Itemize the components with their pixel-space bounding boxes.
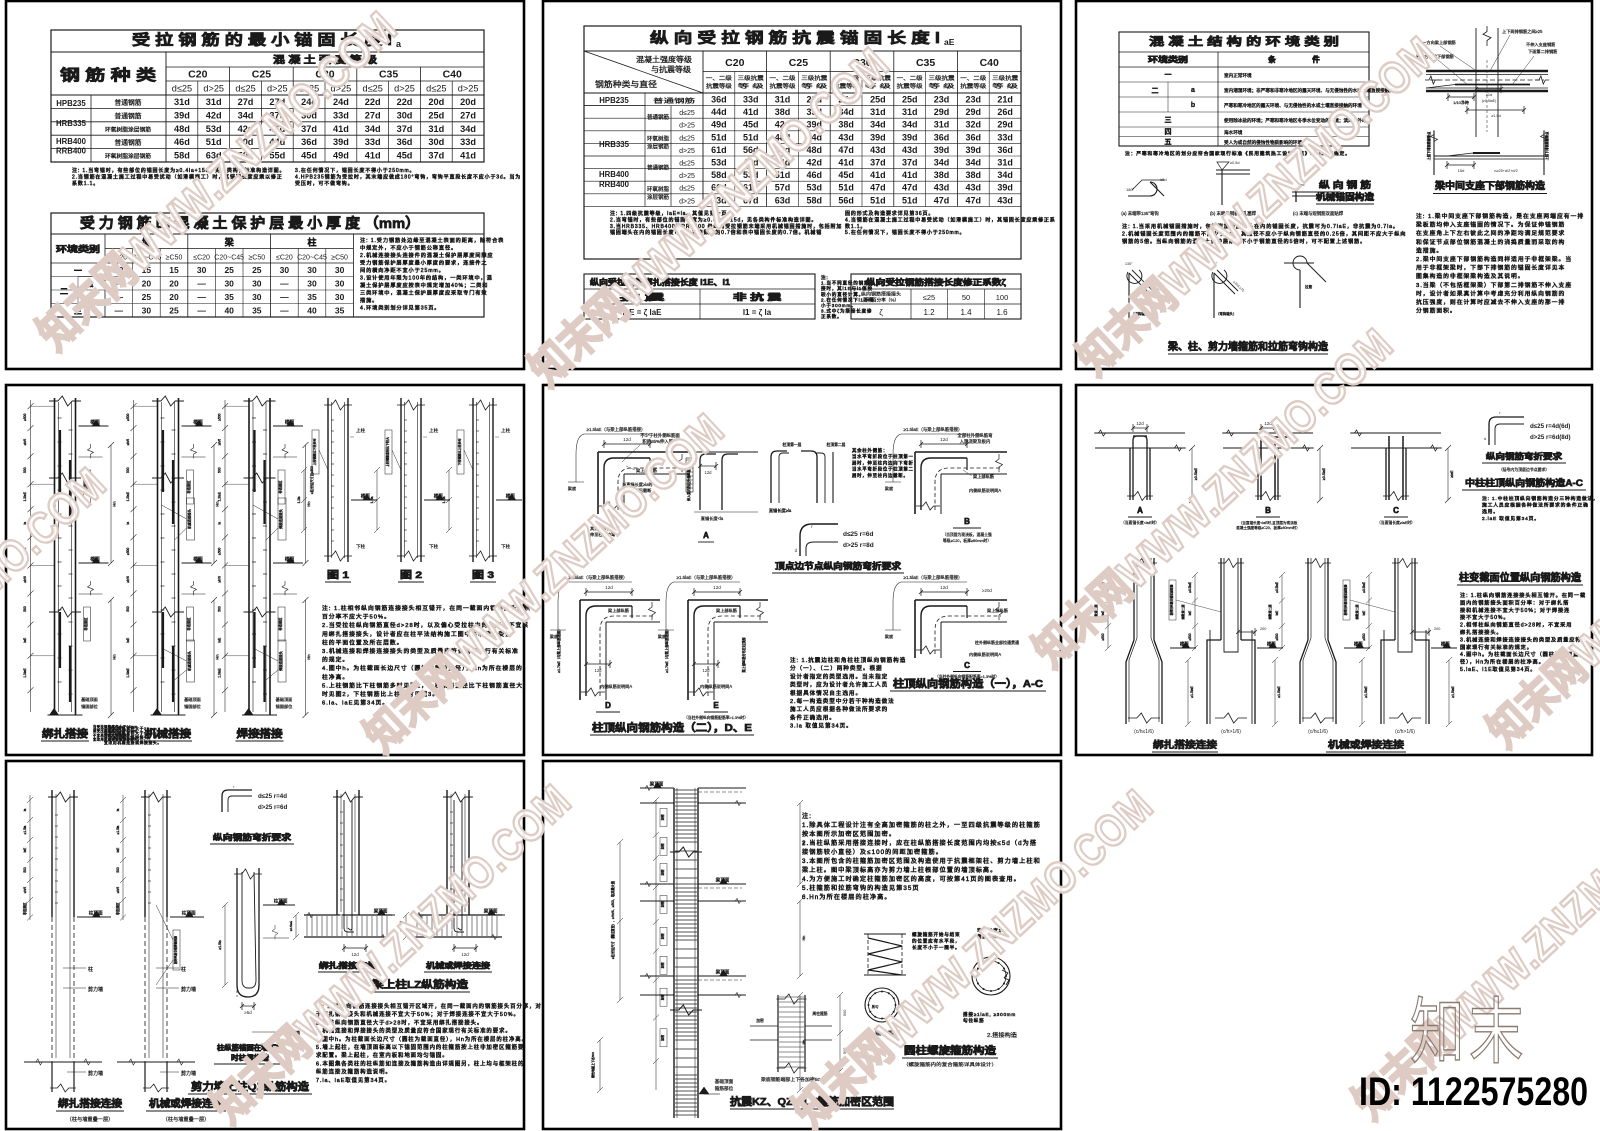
svg-text:类型时，应为设计者允许施工人员: 类型时，应为设计者允许施工人员 (790, 681, 888, 689)
svg-text:中柱柱顶纵向钢筋构造A-C: 中柱柱顶纵向钢筋构造A-C (1465, 477, 1584, 488)
svg-text:29d: 29d (966, 107, 982, 117)
svg-text:31d: 31d (206, 97, 222, 107)
svg-text:d>25: d>25 (679, 173, 695, 180)
svg-text:47d: 47d (966, 195, 982, 205)
svg-text:(c) 末端与短钢筋双面贴焊: (c) 末端与短钢筋双面贴焊 (1293, 210, 1344, 217)
svg-text:1.3laE: 1.3laE (23, 491, 27, 501)
svg-text:≥h/6: ≥h/6 (116, 887, 120, 893)
svg-text:(c/h≤1/6): (c/h≤1/6) (1308, 729, 1328, 735)
svg-text:15d: 15d (1458, 168, 1465, 173)
svg-text:22d: 22d (397, 97, 413, 107)
svg-text:图 2: 图 2 (400, 570, 422, 581)
svg-text:当水平弯折段位于柱顶第二: 当水平弯折段位于柱顶第二 (852, 466, 914, 473)
svg-text:4.图中h。为柱截面长边尺寸（圆柱为截面直径），Hn为所在楼: 4.图中h。为柱截面长边尺寸（圆柱为截面直径），Hn为所在楼层的柱净高。 (316, 1035, 528, 1043)
svg-text:（柱与墙重叠一层）: （柱与墙重叠一层） (67, 1115, 114, 1123)
svg-text:梁上柱。图中梁顶标高亦为剪力墙上柱根部位置的墙顶标高。: 梁上柱。图中梁顶标高亦为剪力墙上柱根部位置的墙顶标高。 (802, 866, 997, 874)
svg-text:下柱: 下柱 (429, 543, 439, 550)
svg-text:36d: 36d (966, 132, 982, 142)
svg-text:普通钢筋: 普通钢筋 (647, 164, 669, 172)
svg-text:≥500: ≥500 (126, 413, 130, 420)
svg-text:53d: 53d (807, 183, 823, 193)
svg-text:d: d (1484, 436, 1486, 441)
svg-text:37d: 37d (397, 124, 413, 134)
svg-text:20: 20 (169, 279, 179, 289)
svg-text:≥1.5laE（与梁上部纵筋搭接）: ≥1.5laE（与梁上部纵筋搭接） (677, 574, 736, 581)
svg-text:laE: laE (23, 848, 27, 853)
svg-text:基础顶面: 基础顶面 (184, 696, 201, 703)
svg-text:≥500: ≥500 (218, 413, 222, 420)
svg-text:23d: 23d (966, 95, 982, 105)
svg-text:上下两排钢筋之间≥25: 上下两排钢筋之间≥25 (1502, 28, 1543, 35)
svg-text:100: 100 (996, 293, 1009, 302)
svg-text:≥0.5laE: ≥0.5laE (1362, 582, 1366, 593)
svg-text:C: C (964, 661, 970, 670)
svg-text:1.2: 1.2 (923, 308, 935, 317)
svg-text:30: 30 (252, 279, 262, 289)
svg-text:加密: 加密 (660, 869, 665, 875)
svg-text:≥1.5laE（与梁上部纵筋搭接）: ≥1.5laE（与梁上部纵筋搭接） (904, 426, 963, 433)
svg-text:面积百分率（%）: 面积百分率（%） (863, 297, 899, 304)
svg-text:5.laE、l1E取值见第34页。: 5.laE、l1E取值见第34页。 (1460, 665, 1536, 673)
svg-text:机械或焊接连接: 机械或焊接连接 (1328, 739, 1405, 751)
svg-text:≥1.5la: ≥1.5la (218, 940, 222, 949)
svg-text:1.3laE: 1.3laE (218, 491, 222, 501)
svg-text:普通钢筋: 普通钢筋 (647, 113, 669, 121)
svg-text:34d: 34d (902, 120, 918, 130)
svg-text:柱顶第二层: 柱顶第二层 (827, 442, 846, 447)
svg-text:1.2la: 1.2la (442, 496, 446, 503)
svg-text:C35: C35 (379, 69, 398, 81)
svg-text:抗震等级: 抗震等级 (706, 82, 733, 90)
svg-text:30d: 30d (397, 110, 413, 120)
svg-text:剪力墙: 剪力墙 (88, 1070, 103, 1077)
svg-text:当水平弯折段位于柱顶第一: 当水平弯折段位于柱顶第一 (852, 453, 914, 460)
svg-text:47d: 47d (902, 183, 918, 193)
svg-text:≥1.5laE: ≥1.5laE (1277, 686, 1281, 698)
svg-text:500: 500 (126, 606, 130, 612)
svg-text:≥柱长边尺寸（圆柱直径）、≥Hn/6、≥500、取其最大值: ≥柱长边尺寸（圆柱直径）、≥Hn/6、≥500、取其最大值 (610, 880, 615, 959)
svg-text:HRB335: HRB335 (599, 140, 630, 149)
svg-text:C20~C45: C20~C45 (297, 255, 327, 262)
svg-text:加密: 加密 (660, 1035, 665, 1041)
svg-text:时，设计者如果真计算中考虑充分利用纵向钢筋的: 时，设计者如果真计算中考虑充分利用纵向钢筋的 (1416, 289, 1565, 297)
svg-text:≥h/6: ≥h/6 (218, 576, 222, 583)
svg-text:50: 50 (962, 293, 970, 302)
svg-text:求配置。梁上起柱，在室内板和地面均匀锚固。: 求配置。梁上起柱，在室内板和地面均匀锚固。 (316, 1051, 449, 1059)
svg-text:laE: laE (218, 637, 222, 643)
svg-text:用于非框架梁时，下部下排钢筋的锚固长度详见本: 用于非框架梁时，下部下排钢筋的锚固长度详见本 (1416, 264, 1565, 272)
svg-text:A: A (1137, 506, 1143, 515)
svg-text:la: la (126, 522, 130, 525)
svg-text:加密: 加密 (660, 933, 665, 939)
svg-text:非连接区: 非连接区 (278, 480, 283, 494)
svg-text:41d: 41d (870, 170, 886, 180)
svg-text:剪力墙: 剪力墙 (181, 986, 196, 993)
svg-text:31d: 31d (174, 97, 190, 107)
svg-text:HRB335: HRB335 (56, 119, 87, 128)
svg-text:3.在任何情况下，锚固长度不得小于250mm。: 3.在任何情况下，锚固长度不得小于250mm。 (295, 167, 415, 174)
svg-text:刚性地面上下各500: 刚性地面上下各500 (590, 1052, 595, 1078)
svg-text:31d: 31d (428, 124, 444, 134)
svg-text:31d: 31d (902, 107, 918, 117)
svg-text:一、二级: 一、二级 (706, 74, 733, 82)
svg-text:非连接区: 非连接区 (22, 902, 27, 916)
svg-text:38d: 38d (966, 170, 982, 180)
svg-text:加密: 加密 (660, 843, 665, 849)
svg-text:内侧纵筋说明同A: 内侧纵筋说明同A (600, 683, 632, 690)
svg-text:入现浇梁及板内: 入现浇梁及板内 (960, 438, 991, 445)
svg-text:500: 500 (23, 867, 27, 873)
svg-text:当受拉钢筋直径大于28mm: 当受拉钢筋直径大于28mm (104, 726, 157, 731)
svg-text:d>25: d>25 (679, 123, 695, 130)
svg-text:楼面: 楼面 (193, 419, 203, 426)
svg-text:39d: 39d (966, 145, 982, 155)
svg-text:基础顶面: 基础顶面 (715, 1078, 734, 1085)
svg-text:C: C (1393, 506, 1399, 515)
svg-text:la: la (23, 809, 27, 812)
svg-text:箍筋部位: 箍筋部位 (715, 1085, 734, 1092)
svg-text:非连接区: 非连接区 (115, 902, 120, 916)
svg-text:环氧树脂涂层钢筋: 环氧树脂涂层钢筋 (105, 125, 151, 133)
svg-text:图 3: 图 3 (472, 570, 494, 581)
svg-text:涂层钢筋: 涂层钢筋 (647, 193, 669, 201)
svg-text:环境类别: 环境类别 (56, 244, 100, 254)
svg-text:Hn: Hn (306, 501, 311, 506)
svg-text:30: 30 (142, 306, 152, 316)
svg-text:500: 500 (116, 867, 120, 873)
svg-text:Hn: Hn (112, 654, 117, 659)
svg-text:d≤25: d≤25 (679, 110, 695, 117)
svg-text:12d: 12d (605, 585, 613, 590)
svg-text:接钢筋较小直径）及≤100的间距加密箍筋。: 接钢筋较小直径）及≤100的间距加密箍筋。 (802, 848, 943, 856)
svg-text:25d: 25d (428, 110, 444, 120)
svg-text:d>25: d>25 (458, 84, 479, 94)
svg-text:HRB400: HRB400 (599, 170, 630, 179)
svg-text:39d: 39d (997, 183, 1013, 193)
svg-text:下柱: 下柱 (501, 543, 511, 550)
svg-text:29d: 29d (997, 120, 1013, 130)
svg-text:46d: 46d (174, 137, 190, 147)
svg-text:绑扎搭接: 绑扎搭接 (42, 727, 89, 740)
svg-text:39d: 39d (934, 145, 950, 155)
svg-text:加密: 加密 (756, 1018, 764, 1023)
svg-text:注: 1.柱纵向钢筋连接接头相互错开。在同一截: 注: 1.柱纵向钢筋连接接头相互错开。在同一截 (1460, 591, 1586, 599)
svg-text:≥0.5d: ≥0.5d (1230, 161, 1239, 165)
svg-text:上柱: 上柱 (429, 427, 439, 434)
svg-text:30: 30 (252, 292, 262, 302)
svg-text:（括号内为顶层边节点要求）: （括号内为顶层边节点要求） (1499, 467, 1550, 472)
svg-text:Hn: Hn (215, 654, 220, 659)
svg-text:7.la、laE取值见第34页。: 7.la、laE取值见第34页。 (316, 1076, 391, 1084)
svg-text:≥1.5laE（与梁上部纵筋搭接）: ≥1.5laE（与梁上部纵筋搭接） (904, 574, 963, 581)
svg-text:—: — (280, 292, 289, 302)
svg-text:30: 30 (335, 265, 345, 275)
svg-text:58d: 58d (807, 195, 823, 205)
svg-text:≥h/6: ≥h/6 (218, 439, 222, 446)
svg-text:≥5d: ≥5d (244, 1010, 252, 1015)
svg-text:4.HPB235钢筋为受拉时，其末端应做成180°弯钩，弯钩: 4.HPB235钢筋为受拉时，其末端应做成180°弯钩，弯钩平直段长度不应小于3… (295, 174, 521, 181)
svg-text:41d: 41d (460, 151, 476, 161)
svg-text:33d: 33d (743, 95, 759, 105)
svg-text:25: 25 (252, 265, 262, 275)
svg-text:机械连接接头: 机械连接接头 (187, 650, 192, 670)
svg-text:laE: laE (23, 637, 27, 643)
svg-text:纵向钢筋弯折要求: 纵向钢筋弯折要求 (1486, 451, 1563, 461)
svg-text:固的形式及构造要求详见第36页。: 固的形式及构造要求详见第36页。 (845, 210, 934, 217)
svg-text:53d: 53d (206, 124, 222, 134)
svg-text:45d: 45d (838, 170, 854, 180)
svg-text:根据具体情况自主选用。: 根据具体情况自主选用。 (790, 689, 862, 697)
svg-text:≥0.5laE: ≥0.5laE (1188, 582, 1192, 593)
svg-text:1.6: 1.6 (996, 308, 1008, 317)
svg-text:环氧树脂涂层钢筋: 环氧树脂涂层钢筋 (105, 152, 151, 160)
svg-text:43d: 43d (997, 195, 1013, 205)
svg-text:≤C20: ≤C20 (193, 255, 210, 262)
svg-text:全部柱外侧纵筋弯: 全部柱外侧纵筋弯 (957, 432, 993, 439)
svg-text:钢 筋 种 类: 钢 筋 种 类 (60, 66, 157, 84)
svg-text:34d: 34d (460, 124, 476, 134)
svg-text:27d: 27d (365, 110, 381, 120)
svg-text:37d: 37d (870, 158, 886, 168)
svg-text:设计者指定的类型选用。当未指定: 设计者指定的类型选用。当未指定 (790, 672, 888, 680)
svg-text:下柱钢筋比上柱多时: 下柱钢筋比上柱多时 (457, 438, 462, 465)
svg-text:（柱与墙重叠一层）: （柱与墙重叠一层） (163, 1115, 210, 1123)
svg-text:（螺旋箍筋内的复合箍筋详具体设计）: （螺旋箍筋内的复合箍筋详具体设计） (903, 1061, 997, 1068)
svg-text:国家现行有关标准的规定。: 国家现行有关标准的规定。 (1460, 643, 1533, 651)
svg-text:(a) 末端带135°弯钩: (a) 末端带135°弯钩 (1121, 210, 1159, 217)
svg-text:34d: 34d (870, 120, 886, 130)
svg-text:涂层钢筋: 涂层钢筋 (647, 142, 669, 150)
svg-text:混凝土强度等级≥C20、板厚≥80mm时）: 混凝土强度等级≥C20、板厚≥80mm时） (1236, 525, 1300, 530)
svg-text:柱顶纵向钢筋构造（二），D、E: 柱顶纵向钢筋构造（二），D、E (592, 721, 752, 734)
svg-text:按本图所示加密区范围加密。: 按本图所示加密区范围加密。 (802, 830, 896, 838)
svg-text:注: 1.梁中间支座下部钢筋构造，是在支座两端应有一排: 注: 1.梁中间支座下部钢筋构造，是在支座两端应有一排 (1416, 212, 1584, 220)
svg-text:C40: C40 (980, 57, 999, 69)
svg-text:混凝土强度等级: 混凝土强度等级 (636, 55, 692, 64)
svg-text:三级抗震: 三级抗震 (929, 74, 956, 82)
svg-text:≥500: ≥500 (1362, 633, 1366, 640)
svg-text:4.当钢筋在混凝土施工过程中易受扰动（如滑模施工）时，其锚固: 4.当钢筋在混凝土施工过程中易受扰动（如滑模施工）时，其锚固长度应乘修正系 (845, 216, 1056, 223)
svg-text:5.墙上起柱，在墙顶面标高以下锚固范围内的柱箍筋按上柱非加密: 5.墙上起柱，在墙顶面标高以下锚固范围内的柱箍筋按上柱非加密区箍筋要 (316, 1043, 524, 1051)
svg-text:l1 = ζ la: l1 = ζ la (743, 308, 772, 317)
svg-text:纵向受拉钢筋搭接长度修正系数ζ: 纵向受拉钢筋搭接长度修正系数ζ (866, 277, 1006, 287)
svg-text:a: a (1191, 87, 1195, 94)
svg-text:楼面: 楼面 (1354, 641, 1363, 648)
svg-text:室内正常环境: 室内正常环境 (1224, 72, 1252, 79)
svg-text:23d: 23d (934, 95, 950, 105)
svg-text:12d: 12d (940, 437, 948, 442)
svg-text:拉筋: 拉筋 (1305, 284, 1313, 289)
svg-text:倒数第二层: 倒数第二层 (1354, 604, 1359, 619)
svg-text:知末: 知末 (1410, 993, 1528, 1073)
svg-text:51d: 51d (870, 195, 886, 205)
svg-text:A: A (703, 531, 709, 540)
svg-text:(c/h>1/6): (c/h>1/6) (1395, 729, 1415, 735)
svg-text:1.2la: 1.2la (370, 496, 374, 503)
svg-text:30: 30 (335, 279, 345, 289)
svg-text:46d: 46d (807, 170, 823, 180)
svg-text:径），Hn为所在楼层的柱净高。: 径），Hn为所在楼层的柱净高。 (1460, 658, 1545, 666)
svg-text:25d: 25d (902, 95, 918, 105)
svg-text:22d: 22d (365, 97, 381, 107)
svg-text:上柱: 上柱 (356, 427, 366, 434)
svg-text:梁、柱、剪力墙箍筋和拉筋弯钩构造: 梁、柱、剪力墙箍筋和拉筋弯钩构造 (1167, 340, 1329, 353)
svg-text:内侧纵筋说明同A: 内侧纵筋说明同A (969, 487, 1001, 494)
svg-text:36d: 36d (934, 132, 950, 142)
svg-text:面内的钢筋接头面积百分率：对于绑扎搭: 面内的钢筋接头面积百分率：对于绑扎搭 (1460, 598, 1569, 606)
svg-text:45d: 45d (301, 151, 317, 161)
svg-text:47d: 47d (934, 195, 950, 205)
svg-text:基础顶面: 基础顶面 (81, 696, 98, 703)
svg-text:135°: 135° (1125, 262, 1133, 266)
svg-text:中规定外，不应小于钢筋公称直径。: 中规定外，不应小于钢筋公称直径。 (360, 244, 457, 252)
svg-text:抗震等级: 抗震等级 (770, 82, 797, 90)
svg-text:42d: 42d (206, 110, 222, 120)
svg-text:≥C50: ≥C50 (331, 255, 348, 262)
svg-text:1.2la: 1.2la (297, 496, 301, 503)
svg-text:47d: 47d (838, 145, 854, 155)
svg-text:(≥0.5laE): (≥0.5laE) (1482, 99, 1497, 103)
svg-text:混 凝 土 结 构 的 环 境 类 别: 混 凝 土 结 构 的 环 境 类 别 (1149, 34, 1339, 48)
svg-text:n≥25+d/2+d/2: n≥25+d/2+d/2 (1494, 169, 1517, 173)
svg-text:34d: 34d (365, 124, 381, 134)
svg-text:≥1.5la: ≥1.5la (23, 825, 27, 834)
svg-text:条: 条 (1267, 54, 1276, 64)
svg-text:数1.1。: 数1.1。 (845, 223, 866, 230)
svg-text:—: — (197, 279, 206, 289)
svg-text:分（一）、（二）两种类型。根据: 分（一）、（二）两种类型。根据 (790, 664, 883, 672)
svg-text:内侧纵筋说明同A: 内侧纵筋说明同A (969, 651, 1001, 658)
svg-text:38d: 38d (934, 170, 950, 180)
svg-text:一、二级: 一、二级 (770, 74, 797, 82)
svg-text:普通钢筋: 普通钢筋 (115, 138, 143, 147)
svg-text:焊接连接接头: 焊接连接接头 (278, 508, 283, 528)
svg-text:非连接区: 非连接区 (186, 617, 191, 631)
svg-text:500: 500 (218, 467, 222, 473)
svg-text:和保证节点部位钢筋混凝土的浇捣质量而采取的构: 和保证节点部位钢筋混凝土的浇捣质量而采取的构 (1416, 238, 1565, 246)
svg-text:楼面: 楼面 (285, 419, 295, 426)
svg-text:≥C50: ≥C50 (248, 255, 265, 262)
svg-text:51d: 51d (838, 183, 854, 193)
svg-text:≤25: ≤25 (923, 293, 935, 302)
svg-text:（当柱外侧纵向钢筋配筋率>1.3%时）: （当柱外侧纵向钢筋配筋率>1.3%时） (684, 715, 748, 720)
svg-text:2.laE 取值见第34页。: 2.laE 取值见第34页。 (1482, 515, 1540, 522)
svg-text:柱变截面位置纵向钢筋构造: 柱变截面位置纵向钢筋构造 (1459, 571, 1582, 584)
svg-text:(c/h>1/6): (c/h>1/6) (1221, 729, 1241, 735)
svg-text:楼面: 楼面 (90, 419, 100, 426)
svg-text:普通钢筋: 普通钢筋 (115, 111, 143, 120)
svg-text:d≤25 r=6d: d≤25 r=6d (843, 531, 874, 538)
svg-text:机械连接接头: 机械连接接头 (187, 508, 192, 528)
svg-text:43d: 43d (838, 132, 854, 142)
svg-text:钢筋种类与直径: 钢筋种类与直径 (595, 79, 657, 89)
svg-text:56d: 56d (838, 195, 854, 205)
svg-text:laE: laE (116, 848, 120, 853)
svg-text:12d: 12d (713, 585, 721, 590)
svg-text:4.为方便施工时确定柱箍筋加密区的高度，可按第41页的图表查: 4.为方便施工时确定柱箍筋加密区的高度，可按第41页的图表查用。 (802, 875, 1021, 883)
svg-text:27d: 27d (238, 97, 254, 107)
svg-text:注: 1.中柱柱顶纵向钢筋构造分三种构造做法，: 注: 1.中柱柱顶纵向钢筋构造分三种构造做法， (1482, 495, 1599, 502)
svg-text:造措施。: 造措施。 (1416, 246, 1443, 254)
svg-text:1.3laE: 1.3laE (126, 668, 130, 678)
svg-text:49d: 49d (333, 151, 349, 161)
svg-text:纵 向 受 拉 钢 筋 抗 震 锚 固 长 度 l: 纵 向 受 拉 钢 筋 抗 震 锚 固 长 度 l (650, 29, 940, 47)
svg-text:(c/h≤1/6): (c/h≤1/6) (1134, 729, 1154, 735)
svg-text:C35: C35 (916, 57, 935, 69)
svg-text:柱外侧纵筋全部拉通贯通: 柱外侧纵筋全部拉通贯通 (975, 639, 1019, 645)
svg-text:加密: 加密 (660, 814, 665, 820)
svg-text:柱顶第一层: 柱顶第一层 (783, 442, 802, 447)
svg-text:d>25 r=8d: d>25 r=8d (843, 542, 874, 549)
svg-text:500: 500 (23, 606, 27, 612)
svg-text:37d: 37d (902, 158, 918, 168)
svg-text:≥500: ≥500 (23, 413, 27, 420)
svg-text:四: 四 (1165, 128, 1172, 136)
svg-text:等 级: 等 级 (738, 82, 765, 90)
svg-text:33d: 33d (333, 110, 349, 120)
svg-text:梁顶面: 梁顶面 (650, 781, 664, 788)
svg-text:C40: C40 (443, 69, 462, 81)
svg-text:不伸入支座钢筋: 不伸入支座钢筋 (1526, 41, 1555, 48)
svg-text:绑扎搭接连接: 绑扎搭接连接 (58, 1097, 122, 1110)
svg-text:纵筋连接及箍筋构造说明。: 纵筋连接及箍筋构造说明。 (316, 1068, 392, 1076)
svg-text:12d: 12d (940, 585, 948, 590)
svg-text:5.柱箍筋和拉筋弯钩的构造见第35页: 5.柱箍筋和拉筋弯钩的构造见第35页 (802, 884, 920, 892)
svg-text:环氧树脂: 环氧树脂 (647, 185, 669, 193)
svg-text:≥h/6: ≥h/6 (126, 439, 130, 446)
svg-text:200: 200 (1434, 627, 1440, 631)
svg-text:下柱: 下柱 (356, 543, 366, 550)
svg-text:等 级: 等 级 (992, 82, 1019, 90)
svg-text:≥500: ≥500 (1275, 633, 1279, 640)
svg-text:三类环境中，混凝土保护层厚度应采取专门有效: 三类环境中，混凝土保护层厚度应采取专门有效 (360, 289, 487, 297)
svg-text:注:: 注: (802, 812, 812, 820)
svg-text:6.Hn为所在楼层的柱净高。: 6.Hn为所在楼层的柱净高。 (802, 893, 892, 901)
svg-text:500: 500 (843, 1010, 847, 1016)
svg-text:（弯钩端头）: （弯钩端头） (1216, 311, 1236, 316)
svg-text:≥h/6: ≥h/6 (23, 887, 27, 893)
svg-text:laE: laE (126, 637, 130, 643)
svg-text:上柱钢筋直径比下柱大: 上柱钢筋直径比下柱大 (385, 437, 390, 467)
svg-text:ID: 1122575280: ID: 1122575280 (1359, 1070, 1588, 1114)
svg-text:上层下排钢筋截断点: 上层下排钢筋截断点 (1426, 131, 1431, 160)
svg-text:绑扎搭接接头。: 绑扎搭接接头。 (1460, 628, 1502, 636)
svg-text:三级抗震: 三级抗震 (992, 74, 1019, 82)
svg-text:la: la (116, 809, 120, 812)
svg-text:楼面: 楼面 (193, 556, 203, 563)
svg-text:绑扎搭接连接: 绑扎搭接连接 (1153, 739, 1218, 751)
svg-text:58d: 58d (174, 151, 190, 161)
svg-text:ζ: ζ (879, 308, 883, 317)
svg-text:2.每一构造类型中分若干种构造做法: 2.每一构造类型中分若干种构造做法 (790, 697, 895, 705)
svg-text:1/10净跨: 1/10净跨 (1453, 99, 1469, 105)
svg-text:≥1.5d: ≥1.5d (1491, 114, 1500, 118)
svg-text:6.本图集各类柱的柱纵筋如连接及箍筋构造由详规图另，柱上均与: 6.本图集各类柱的柱纵筋如连接及箍筋构造由详规图另，柱上均与框架柱的 (316, 1059, 524, 1067)
svg-text:41d: 41d (365, 151, 381, 161)
svg-text:d≤25: d≤25 (679, 186, 695, 193)
svg-text:34d: 34d (966, 158, 982, 168)
svg-text:41d: 41d (743, 107, 759, 117)
svg-text:相邻纵筋交错焊接连接: 相邻纵筋交错焊接连接 (174, 936, 178, 964)
svg-text:30: 30 (335, 292, 345, 302)
svg-text:（当顶层为现浇板，混凝土强: （当顶层为现浇板，混凝土强 (942, 532, 992, 537)
svg-text:1.3laE: 1.3laE (126, 491, 130, 501)
svg-text:一、二级: 一、二级 (897, 74, 924, 82)
svg-text:梁上部纵筋: 梁上部纵筋 (716, 607, 737, 614)
svg-text:梁上部纵筋: 梁上部纵筋 (608, 607, 629, 614)
svg-text:受压时，可不做弯钩。: 受压时，可不做弯钩。 (295, 180, 354, 187)
svg-text:39d: 39d (333, 137, 349, 147)
